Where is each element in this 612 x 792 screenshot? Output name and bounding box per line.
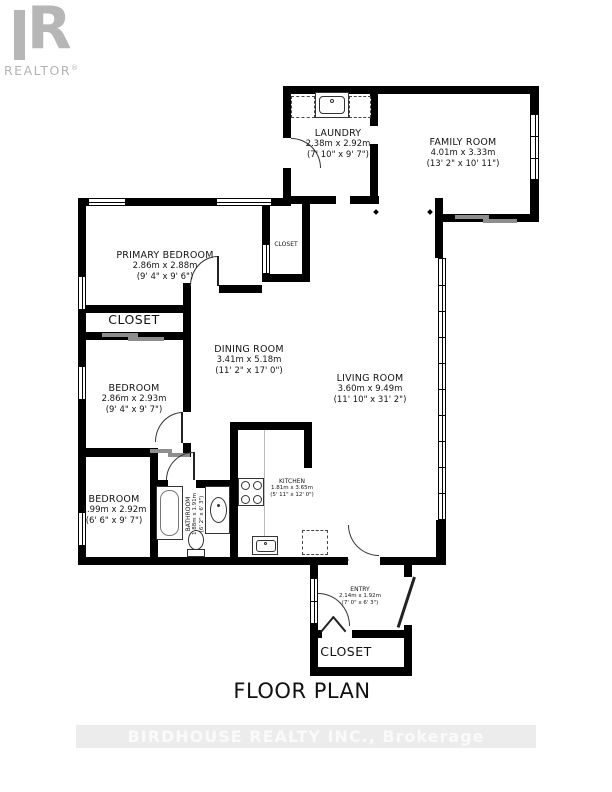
room-label-primary-bedroom: PRIMARY BEDROOM 2.86m x 2.88m (9' 4" x 9… (105, 250, 225, 283)
realtor-brand-text: REALTOR (4, 63, 71, 78)
window (310, 578, 318, 624)
room-label-primary-closet: CLOSET (94, 312, 174, 327)
toilet-tank (187, 549, 205, 557)
wall (304, 422, 312, 468)
registered-mark: ® (71, 64, 80, 72)
door-opening (336, 196, 350, 204)
room-label-dining: DINING ROOM 3.41m x 5.18m (11' 2" x 17' … (189, 344, 309, 377)
room-label-bedroom-3: BEDROOM 1.99m x 2.92m (6' 6" x 9' 7") (54, 494, 174, 527)
room-label-hall-closet: CLOSET (262, 241, 310, 248)
window (216, 198, 272, 206)
wall (262, 274, 310, 282)
room-label-kitchen: KITCHEN 1.81m x 3.65m (5' 11" x 12' 0") (252, 478, 332, 499)
realtor-logo-bar (14, 10, 25, 60)
wall (530, 86, 539, 116)
page-title: FLOOR PLAN (202, 679, 402, 703)
wall (352, 630, 412, 638)
wall (435, 198, 443, 258)
window (78, 276, 86, 310)
wall (78, 557, 324, 565)
opening-tick (373, 209, 379, 215)
wall (230, 422, 238, 557)
room-label-entry-closet: CLOSET (306, 644, 386, 659)
room-label-living: LIVING ROOM 3.60m x 9.49m (11' 10" x 31'… (310, 373, 430, 406)
realtor-logo: R REALTOR® (0, 0, 90, 84)
floor-plan-page: R REALTOR® (0, 0, 612, 792)
wall (230, 422, 312, 430)
wall (262, 204, 270, 244)
realtor-logo-wordmark: REALTOR® (4, 63, 80, 78)
door-swing (348, 525, 379, 556)
sliding-door (128, 337, 164, 341)
laundry-sink-icon (315, 92, 349, 118)
dryer-icon (349, 96, 371, 118)
vanity-sink-icon (205, 486, 230, 534)
sliding-door (483, 219, 517, 223)
brokerage-watermark: BIRDHOUSE REALTY INC., Brokerage (76, 725, 536, 748)
washer-icon (291, 96, 315, 118)
fridge-icon (302, 530, 328, 555)
realtor-logo-r-icon: R (27, 0, 72, 63)
door-leaf (181, 412, 183, 443)
closet-door (262, 244, 270, 274)
window (88, 198, 126, 206)
wall (370, 94, 378, 126)
wall (436, 520, 446, 565)
window-living-wall (438, 258, 446, 520)
wall (219, 285, 262, 293)
room-label-bathroom: BATHROOM 1.88m x 1.91m (6' 2" x 6' 3") (185, 485, 207, 543)
wall (310, 667, 412, 676)
room-label-laundry: LAUNDRY 2.38m x 2.92m (7' 10" x 9' 7") (278, 128, 398, 161)
door-leaf (193, 452, 195, 480)
room-label-entry: ENTRY 2.14m x 1.92m (7' 0" x 6' 3") (320, 586, 400, 607)
room-label-family: FAMILY ROOM 4.01m x 3.33m (13' 2" x 10' … (400, 137, 526, 170)
door-swing (155, 412, 183, 442)
kitchen-sink-icon (252, 536, 278, 555)
room-label-bedroom-2: BEDROOM 2.86m x 2.93m (9' 4" x 9' 7") (74, 383, 194, 416)
wall (78, 448, 150, 457)
window (530, 114, 539, 180)
opening-tick (427, 209, 433, 215)
